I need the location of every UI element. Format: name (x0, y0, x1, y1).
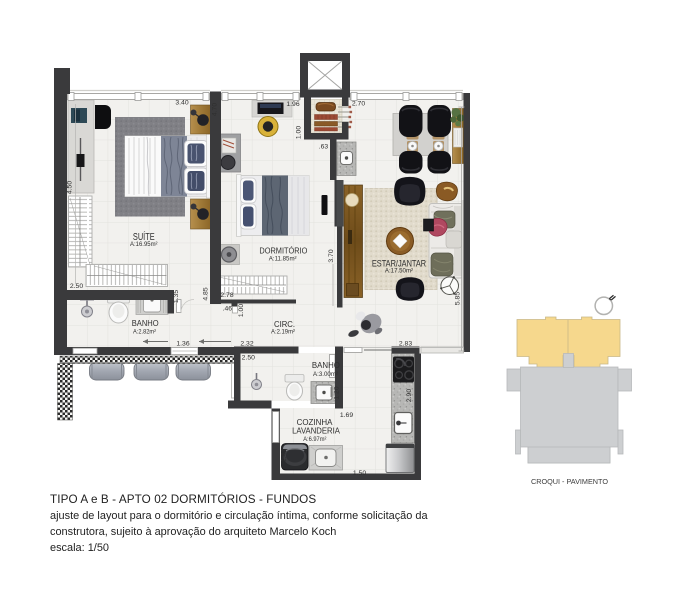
svg-text:.46: .46 (223, 306, 233, 313)
svg-text:1.20: 1.20 (334, 386, 341, 399)
svg-text:4.85: 4.85 (203, 287, 210, 300)
svg-text:1.36: 1.36 (176, 341, 189, 348)
svg-text:A:3.00m²: A:3.00m² (313, 371, 338, 378)
svg-text:2.83: 2.83 (399, 341, 412, 348)
svg-text:A:11.85m²: A:11.85m² (269, 255, 297, 262)
svg-text:4.50: 4.50 (67, 181, 74, 194)
svg-text:DORMITÓRIO: DORMITÓRIO (259, 245, 307, 255)
svg-text:1.41: 1.41 (281, 449, 288, 462)
svg-text:5.85: 5.85 (455, 292, 462, 305)
svg-text:TIPO A e B - APTO 02 DORMITÓR: TIPO A e B - APTO 02 DORMITÓRIOS - FUNDO… (50, 493, 316, 506)
svg-text:BANHO: BANHO (132, 318, 159, 328)
svg-text:LAVANDERIA: LAVANDERIA (292, 426, 340, 436)
svg-text:ajuste de layout para o dormit: ajuste de layout para o dormitório e cir… (50, 510, 428, 522)
svg-text:A:2.19m²: A:2.19m² (271, 328, 295, 335)
svg-text:2.50: 2.50 (70, 283, 83, 290)
svg-text:2.32: 2.32 (240, 341, 253, 348)
svg-text:escala: 1/50: escala: 1/50 (50, 542, 109, 554)
svg-text:construtora, sujeito à aprovaç: construtora, sujeito à aprovação do arqu… (50, 526, 336, 538)
svg-text:4.70: 4.70 (212, 103, 219, 116)
svg-text:3.70: 3.70 (328, 249, 335, 262)
svg-text:2.50: 2.50 (242, 355, 255, 362)
svg-text:A:2.82m²: A:2.82m² (133, 328, 156, 335)
svg-text:3.40: 3.40 (175, 100, 188, 107)
svg-text:.63: .63 (319, 144, 329, 151)
svg-text:2.70: 2.70 (352, 101, 365, 108)
svg-text:1.50: 1.50 (353, 470, 366, 477)
svg-text:CROQUI - PAVIMENTO: CROQUI - PAVIMENTO (531, 477, 608, 486)
svg-text:2.90: 2.90 (406, 389, 413, 402)
svg-text:BANHO: BANHO (312, 360, 341, 370)
svg-text:A:6.97m²: A:6.97m² (303, 436, 326, 443)
svg-text:1.35: 1.35 (173, 290, 180, 303)
svg-text:1.96: 1.96 (286, 101, 299, 108)
svg-text:1.69: 1.69 (340, 412, 353, 419)
svg-text:2.78: 2.78 (220, 292, 233, 299)
svg-text:1.00: 1.00 (238, 304, 245, 317)
svg-text:1.00: 1.00 (296, 126, 303, 139)
svg-text:A:16.95m²: A:16.95m² (130, 241, 158, 248)
svg-text:A:17.50m²: A:17.50m² (385, 268, 414, 275)
